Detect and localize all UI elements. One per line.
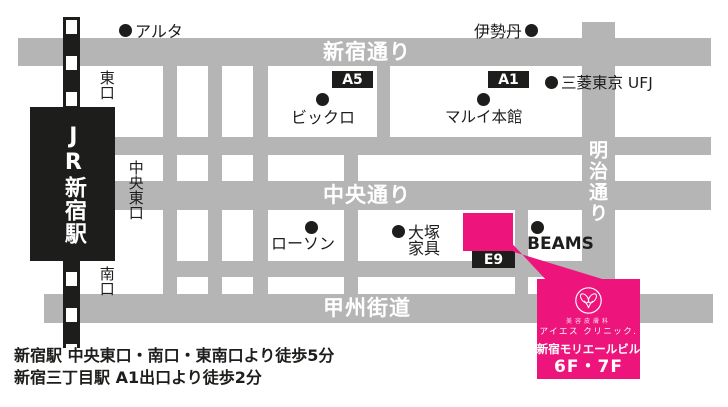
street-chuo-dori bbox=[114, 181, 711, 210]
lawson-label: ローソン bbox=[271, 235, 335, 253]
alta-label: アルタ bbox=[135, 18, 183, 42]
landmark-mitsubishi-ufj: 三菱東京 UFJ bbox=[545, 71, 653, 93]
street-minor-north bbox=[114, 137, 711, 155]
bicqlo-marker-icon bbox=[316, 93, 329, 106]
street-label-meiji-dori: 明治通り bbox=[587, 140, 606, 224]
exit-label-central-east: 中央東口 bbox=[127, 160, 143, 220]
bicqlo-label: ビックロ bbox=[291, 109, 355, 127]
alta-marker-icon bbox=[119, 24, 132, 37]
access-notes: 新宿駅 中央東口・南口・東南口より徒歩5分 新宿三丁目駅 A1出口より徒歩2分 bbox=[14, 345, 334, 389]
isetan-label: 伊勢丹 bbox=[474, 18, 522, 42]
access-note-line1: 新宿駅 中央東口・南口・東南口より徒歩5分 bbox=[14, 345, 334, 367]
otsuka-kagu-marker-icon bbox=[392, 225, 405, 238]
clinic-building-name: 新宿モリエールビル bbox=[537, 344, 641, 356]
street-vertical-4 bbox=[377, 66, 390, 137]
landmark-alta: アルタ bbox=[119, 18, 183, 42]
exit-badge-a5: A5 bbox=[332, 71, 373, 88]
street-vertical-3 bbox=[253, 66, 268, 294]
street-label-koshu-kaido: 甲州街道 bbox=[323, 298, 411, 319]
marui-marker-icon bbox=[477, 93, 490, 106]
street-label-shinjuku-dori: 新宿通り bbox=[323, 42, 411, 63]
mitsubishi-ufj-label: 三菱東京 UFJ bbox=[561, 71, 653, 93]
clinic-floors: 6F・7F bbox=[554, 359, 623, 376]
clinic-logo-icon bbox=[574, 286, 603, 315]
mitsubishi-ufj-marker-icon bbox=[545, 76, 558, 89]
clinic-callout-card: 美容皮膚科 アイエス クリニック. 新宿モリエールビル 6F・7F bbox=[537, 279, 640, 379]
exit-label-south: 南口 bbox=[98, 266, 114, 296]
clinic-department: 美容皮膚科 bbox=[566, 319, 611, 325]
street-label-chuo-dori: 中央通り bbox=[323, 185, 411, 206]
beams-marker-icon bbox=[531, 221, 544, 234]
marui-label: マルイ本館 bbox=[445, 109, 523, 126]
access-map: 新宿通り 中央通り 甲州街道 明治通り JR新宿駅 東口 中央東口 南口 アルタ… bbox=[0, 0, 728, 407]
access-note-line2: 新宿三丁目駅 A1出口より徒歩2分 bbox=[14, 367, 334, 389]
callout-pointer bbox=[500, 234, 615, 283]
street-vertical-2 bbox=[208, 66, 222, 294]
jr-shinjuku-station-box: JR新宿駅 bbox=[30, 107, 115, 261]
isetan-marker-icon bbox=[525, 24, 538, 37]
clinic-name: アイエス クリニック. bbox=[540, 328, 638, 337]
otsuka-kagu-label-line2: 家具 bbox=[408, 240, 440, 258]
exit-badge-a1: A1 bbox=[488, 71, 529, 88]
exit-label-east: 東口 bbox=[98, 70, 114, 100]
lawson-marker-icon bbox=[305, 221, 318, 234]
landmark-isetan: 伊勢丹 bbox=[474, 18, 538, 42]
station-name: JR新宿駅 bbox=[60, 124, 85, 245]
street-vertical-1 bbox=[163, 66, 177, 294]
street-vertical-5 bbox=[344, 155, 358, 294]
